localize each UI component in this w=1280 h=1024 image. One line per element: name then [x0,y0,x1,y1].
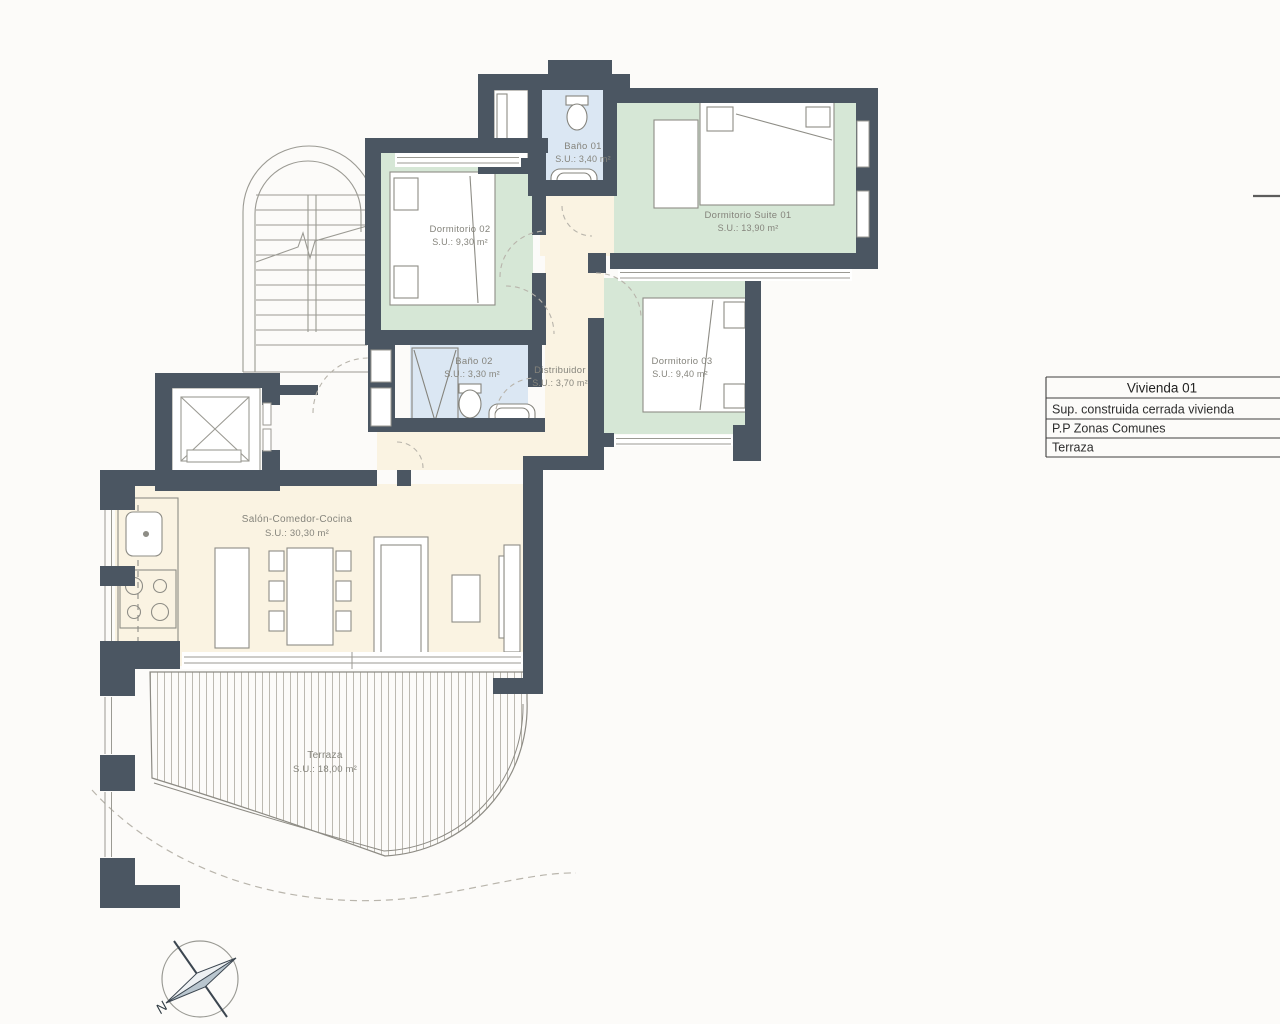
stair-break-line [256,226,367,262]
area-bath-02: S.U.: 3,30 m² [444,369,500,379]
toilet [459,390,481,418]
area-living: S.U.: 30,30 m² [265,528,329,539]
coffee-table [452,575,480,622]
door-entrance [313,358,368,413]
staircase [243,146,375,372]
suite-wardrobe [654,120,698,208]
chair [336,551,351,571]
label-bath-01: Baño 01 [564,141,602,152]
floor-plan-page: Baño 01 S.U.: 3,40 m² Dormitorio Suite 0… [0,0,1280,1024]
label-bath-02: Baño 02 [455,356,493,367]
pillow [806,107,830,127]
area-suite-01: S.U.: 13,90 m² [718,223,779,233]
floor-plan-canvas: Baño 01 S.U.: 3,40 m² Dormitorio Suite 0… [0,0,1280,1024]
chair [336,581,351,601]
summary-table-row: Sup. construida cerrada vivienda [1052,403,1234,417]
label-living: Salón-Comedor-Cocina [242,514,353,525]
label-terrace: Terraza [307,750,343,761]
stair-stringer [308,195,316,332]
area-bath-01: S.U.: 3,40 m² [555,154,611,164]
tv-unit [504,545,520,652]
summary-table-header: Vivienda 01 [1127,381,1197,396]
north-compass: N [152,941,238,1017]
label-suite-01: Dormitorio Suite 01 [704,210,791,221]
elevator [172,388,260,473]
label-bedroom-02: Dormitorio 02 [430,224,491,235]
label-distribuidor: Distribuidor [534,365,586,376]
label-bedroom-03: Dormitorio 03 [652,356,713,367]
chair [269,581,284,601]
pillow [724,302,745,328]
summary-table: Vivienda 01 Sup. construida cerrada vivi… [1046,377,1280,457]
kitchen-island [215,548,249,648]
toilet [567,104,587,130]
terrace-deck [92,672,576,901]
corridor-floor [377,430,604,458]
sofa [374,537,428,663]
compass-needle-icon [166,958,236,1003]
pillow [724,384,745,408]
summary-table-row: P.P Zonas Comunes [1052,422,1166,436]
hall-floor-top [540,196,616,256]
summary-table-row: Terraza [1052,441,1094,455]
area-terrace: S.U.: 18,00 m² [293,764,357,775]
chair [269,611,284,631]
dining-table [287,548,333,645]
area-distribuidor: S.U.: 3,70 m² [532,378,588,388]
chair [336,611,351,631]
area-bedroom-03: S.U.: 9,40 m² [652,369,708,379]
pillow [707,107,733,131]
area-bedroom-02: S.U.: 9,30 m² [432,237,488,247]
corridor-floor-2 [377,456,523,470]
tv [499,556,504,638]
chair [269,551,284,571]
pillow [394,266,418,298]
pillow [394,178,418,210]
